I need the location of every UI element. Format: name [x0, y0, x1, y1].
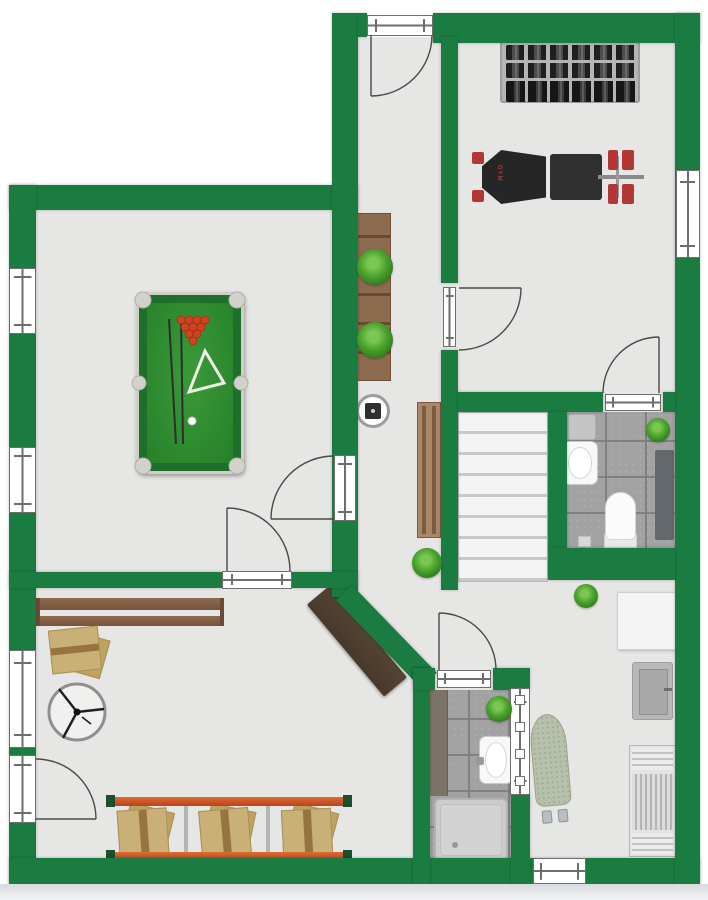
- drying-rack: [629, 745, 676, 857]
- drying-rack-shelf: [632, 748, 673, 770]
- bench-slat: [432, 406, 436, 534]
- wall: [548, 548, 675, 580]
- bench-brand-label: GYM: [496, 165, 502, 182]
- door-frame-exterior: [9, 755, 36, 823]
- bench-foot-pad: [472, 190, 484, 202]
- wall: [292, 572, 358, 588]
- door-frame-storage: [222, 571, 292, 589]
- door-frame-gym: [443, 287, 456, 347]
- wall: [441, 37, 458, 283]
- sliding-door-panel: [515, 695, 525, 705]
- pool-table-felt: [147, 303, 233, 463]
- shower-square: [568, 414, 596, 440]
- potted-plant: [357, 322, 393, 358]
- shower-tray: [434, 798, 508, 862]
- shower-mat: [655, 450, 674, 540]
- ironing-board-top: [528, 713, 572, 808]
- potted-plant: [412, 548, 442, 578]
- wall: [458, 392, 603, 412]
- cabinet: [632, 662, 673, 720]
- door-frame-entrance: [367, 15, 433, 36]
- potted-plant: [357, 249, 393, 285]
- rack-box: [198, 807, 252, 857]
- wall: [493, 668, 530, 690]
- floor-plan: GYM: [0, 0, 708, 900]
- cardboard-box: [48, 626, 102, 675]
- wall: [675, 13, 700, 884]
- drying-rack-bars: [632, 774, 673, 830]
- wall: [413, 668, 435, 690]
- rack-box: [116, 807, 169, 856]
- window: [9, 447, 36, 513]
- sliding-door: [510, 688, 530, 795]
- sink: [479, 736, 513, 784]
- potted-plant: [486, 696, 512, 722]
- rack-post: [343, 795, 352, 807]
- door-frame-bathroom-lower: [437, 670, 491, 688]
- weight-plate: [608, 184, 618, 204]
- weight-plate: [622, 184, 634, 204]
- wall: [433, 13, 700, 43]
- sliding-door-panel: [515, 749, 525, 759]
- wall: [9, 858, 700, 884]
- hall-bench: [417, 402, 441, 538]
- wall-shelf-end: [220, 598, 224, 626]
- ironing-board-wheel: [557, 809, 568, 823]
- wall-shelf-end: [36, 598, 40, 626]
- window: [676, 170, 700, 258]
- dumbbell-row: [506, 45, 638, 60]
- ironing-board-wheel: [542, 810, 553, 824]
- dumbbell-row: [506, 63, 638, 78]
- window: [9, 268, 36, 334]
- wall-shelf-board: [38, 598, 222, 610]
- toilet: [602, 492, 639, 548]
- stairs: [458, 412, 548, 582]
- wall: [9, 572, 222, 588]
- storage-rack: [106, 795, 352, 863]
- potted-plant: [646, 418, 670, 442]
- door-frame-bathroom-upper: [605, 394, 661, 411]
- sliding-door-panel: [515, 776, 525, 786]
- weight-plate: [622, 150, 634, 170]
- side-table: [617, 592, 676, 650]
- wall: [358, 13, 367, 37]
- potted-plant: [574, 584, 598, 608]
- weight-plate: [608, 150, 618, 170]
- rack-divider: [266, 805, 270, 853]
- weight-bench: GYM: [472, 150, 644, 204]
- wall: [9, 185, 358, 210]
- bathroom-counter: [430, 690, 448, 796]
- faucet: [476, 757, 484, 765]
- wall: [413, 668, 430, 884]
- rack-rail: [106, 797, 352, 806]
- cabinet-door: [639, 669, 668, 715]
- hallway-floor: [358, 37, 441, 212]
- sink-basin: [485, 742, 507, 778]
- door-frame-billiard: [334, 455, 356, 521]
- dumbbell-rack: [500, 40, 640, 103]
- bath-small-square: [578, 536, 591, 547]
- rack-box: [281, 808, 333, 857]
- ground-shadow-strip: [0, 884, 708, 900]
- bench-foot-pad: [472, 152, 484, 164]
- round-side-table: [356, 394, 390, 428]
- window: [9, 650, 36, 748]
- rack-divider: [184, 805, 188, 853]
- bench-seat: [550, 154, 602, 200]
- bench-slat: [422, 406, 426, 534]
- wall: [441, 350, 458, 590]
- barbell-bar: [598, 175, 644, 179]
- shower-drain: [452, 842, 458, 848]
- rack-post: [106, 795, 115, 807]
- wall: [663, 392, 675, 412]
- bench-head-pad: GYM: [482, 150, 546, 204]
- sink: [562, 441, 598, 485]
- window: [533, 858, 586, 884]
- sliding-door-panel: [515, 722, 525, 732]
- shower-tray-inner: [440, 804, 502, 856]
- side-table-dot: [371, 409, 375, 413]
- pool-table: [136, 292, 244, 474]
- toilet-bowl: [605, 492, 636, 540]
- wall: [548, 412, 567, 548]
- box-tape: [51, 644, 99, 656]
- wall-shelf-board: [38, 616, 222, 626]
- sink-basin: [568, 447, 592, 479]
- cabinet-handle: [664, 688, 672, 691]
- wall: [511, 793, 530, 884]
- drying-rack-shelf: [632, 833, 673, 854]
- dumbbell-row: [506, 81, 638, 102]
